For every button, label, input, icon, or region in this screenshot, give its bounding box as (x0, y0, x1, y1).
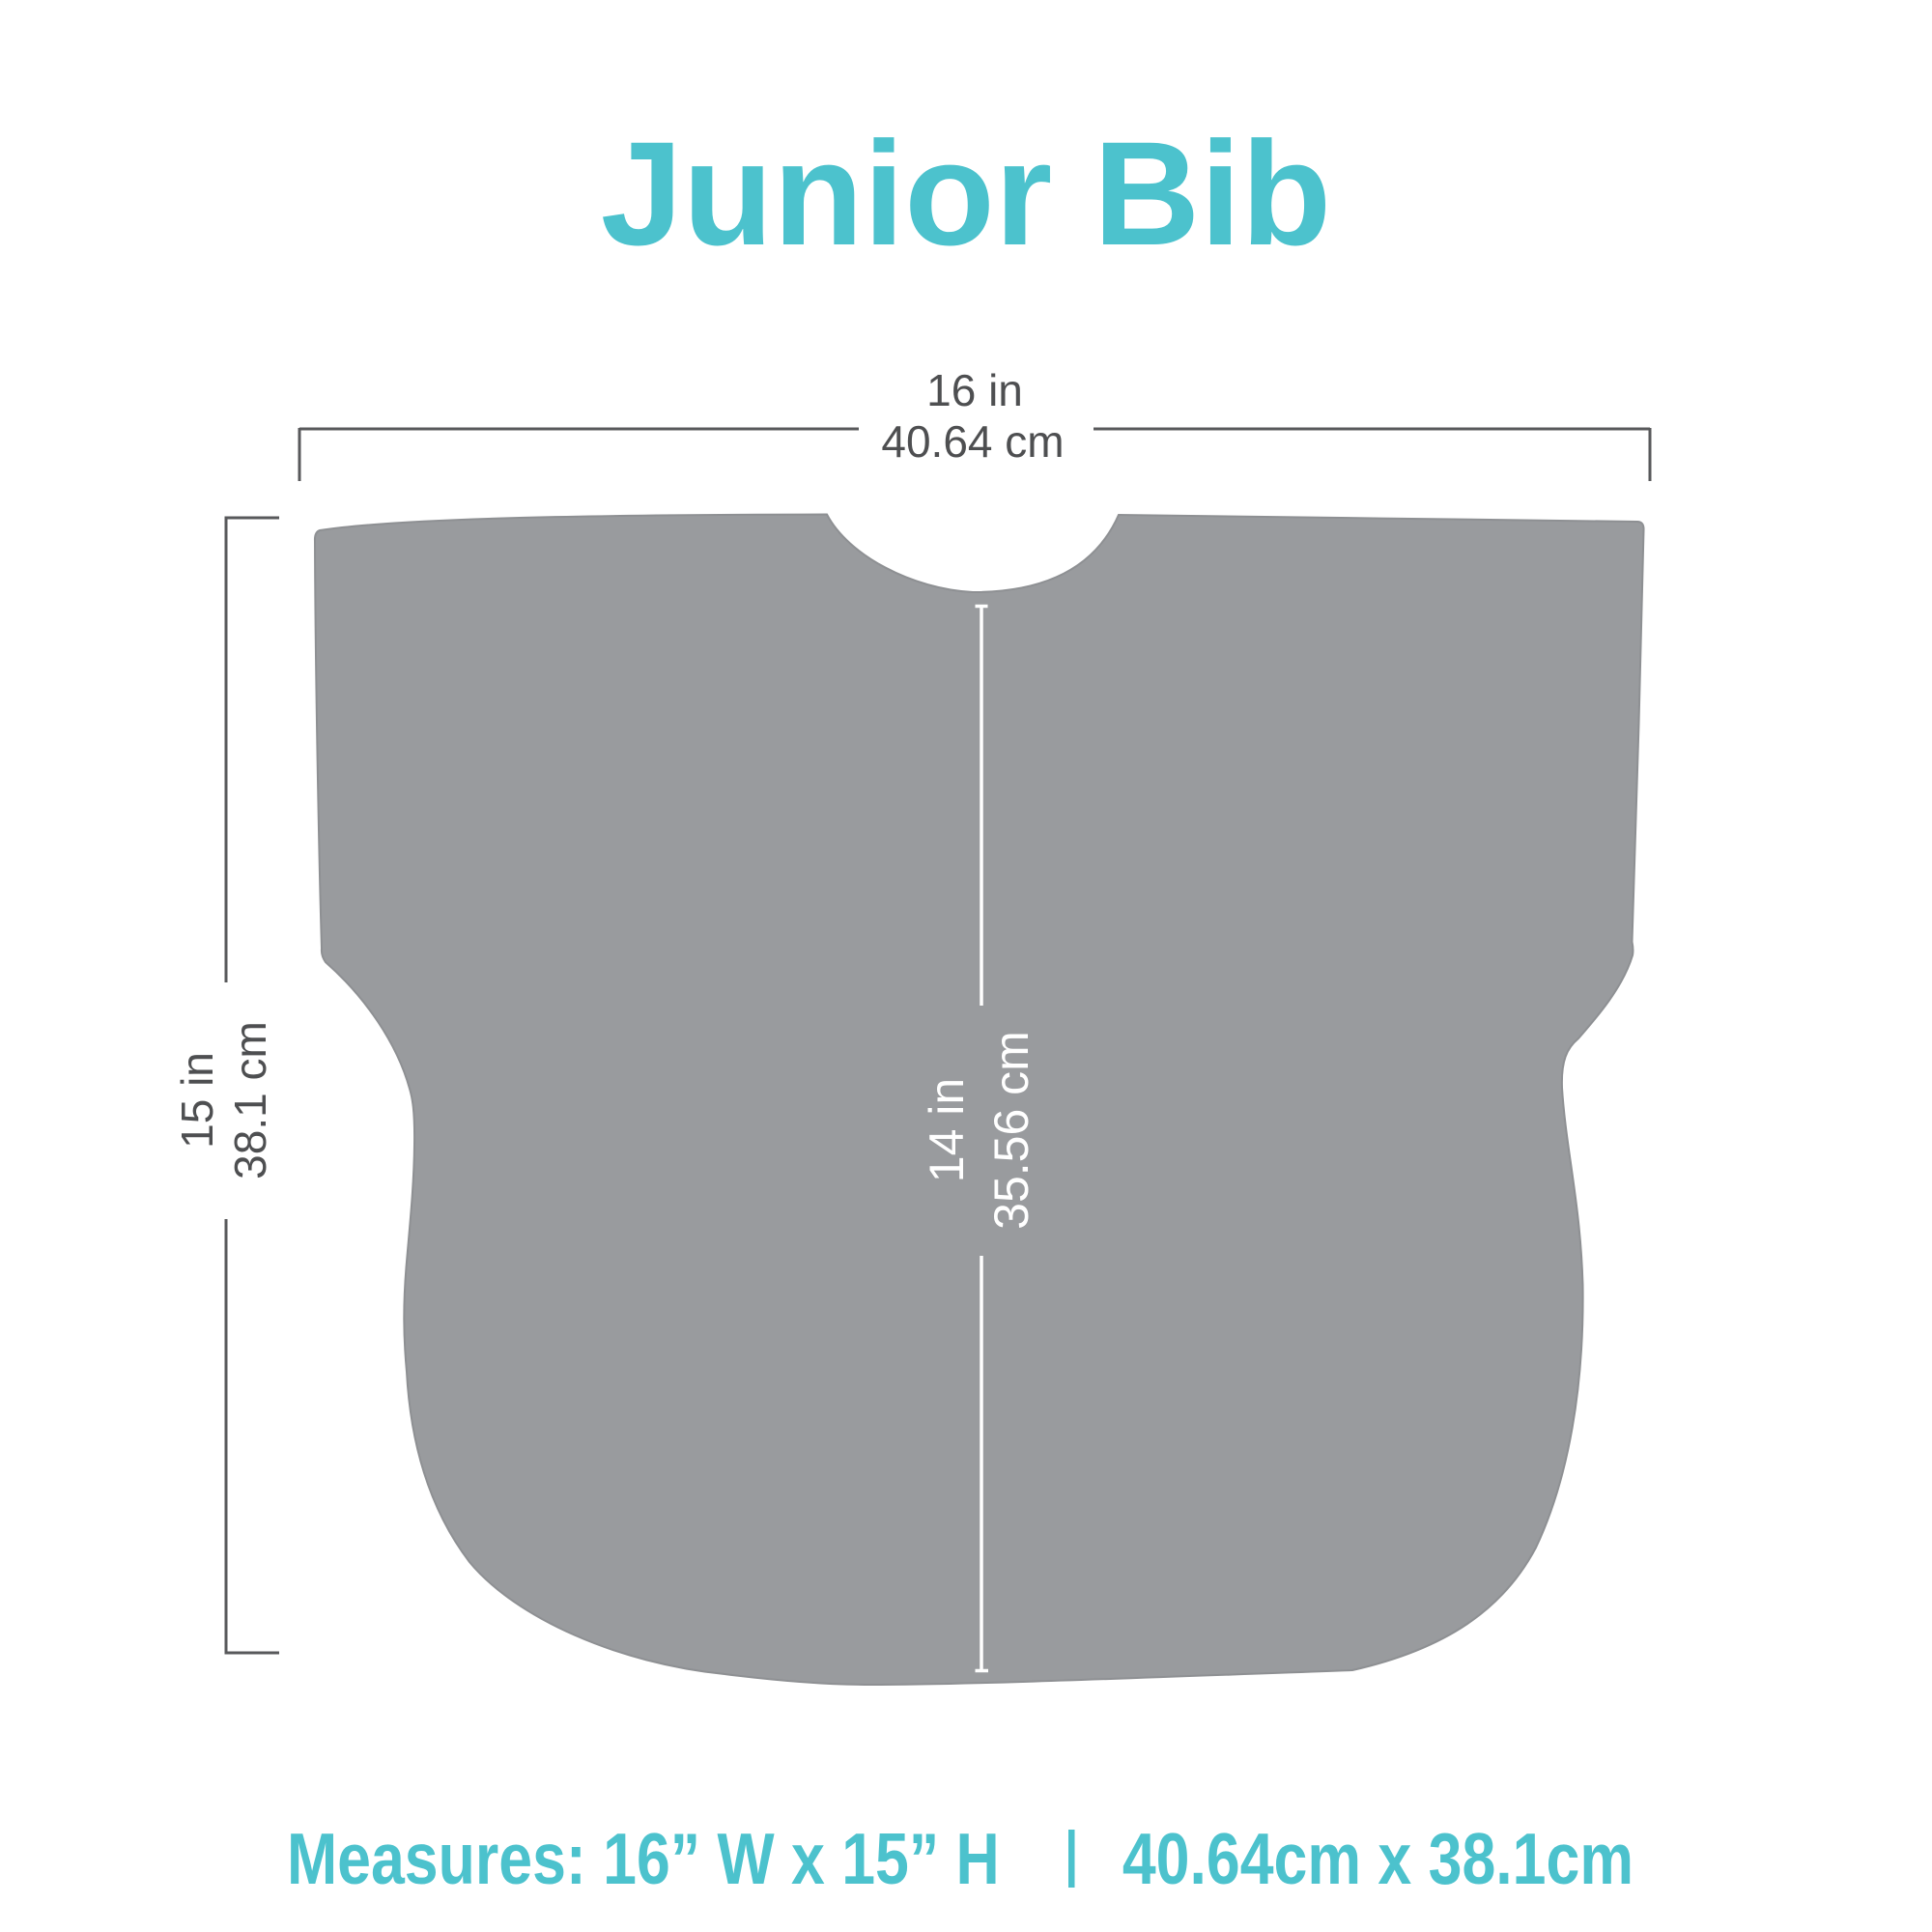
svg-text:16 in: 16 in (926, 365, 1023, 415)
svg-text:38.1 cm: 38.1 cm (225, 1021, 275, 1179)
svg-text:Measures: 16” W x 15” H: Measures: 16” W x 15” H (287, 1818, 1000, 1900)
svg-text:40.64cm x 38.1cm: 40.64cm x 38.1cm (1122, 1818, 1634, 1900)
svg-text:15 in: 15 in (172, 1052, 222, 1149)
svg-text:14 in: 14 in (920, 1078, 974, 1182)
svg-text:40.64 cm: 40.64 cm (881, 416, 1064, 467)
svg-text:Junior Bib: Junior Bib (601, 111, 1331, 276)
svg-text:35.56 cm: 35.56 cm (984, 1031, 1038, 1230)
